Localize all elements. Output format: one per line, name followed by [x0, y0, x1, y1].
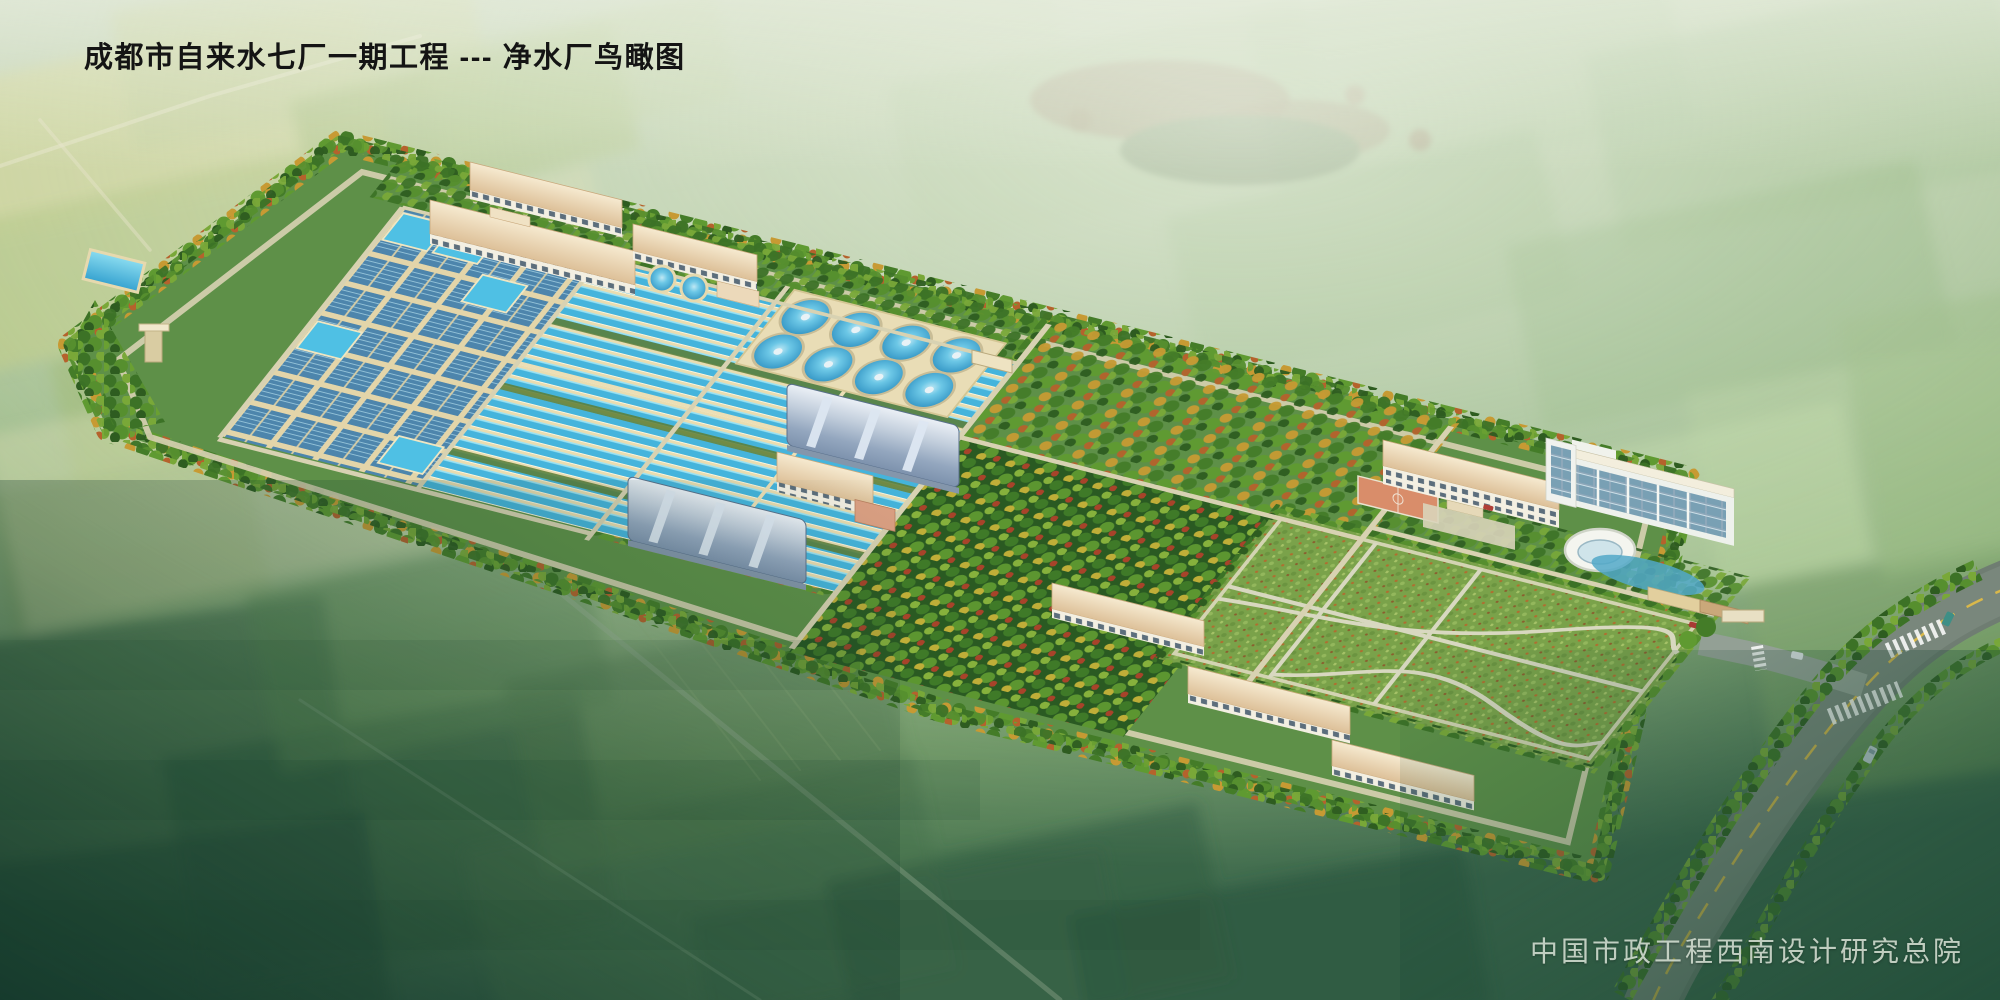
rendering-canvas — [0, 0, 2000, 1000]
drawing-title: 成都市自来水七厂一期工程 --- 净水厂鸟瞰图 — [84, 34, 686, 76]
design-institute-credit: 中国市政工程西南设计研究总院 — [1530, 930, 1964, 970]
top-haze — [0, 0, 2000, 170]
aerial-rendering-water-plant: 成都市自来水七厂一期工程 --- 净水厂鸟瞰图 中国市政工程西南设计研究总院 — [0, 0, 2000, 1000]
